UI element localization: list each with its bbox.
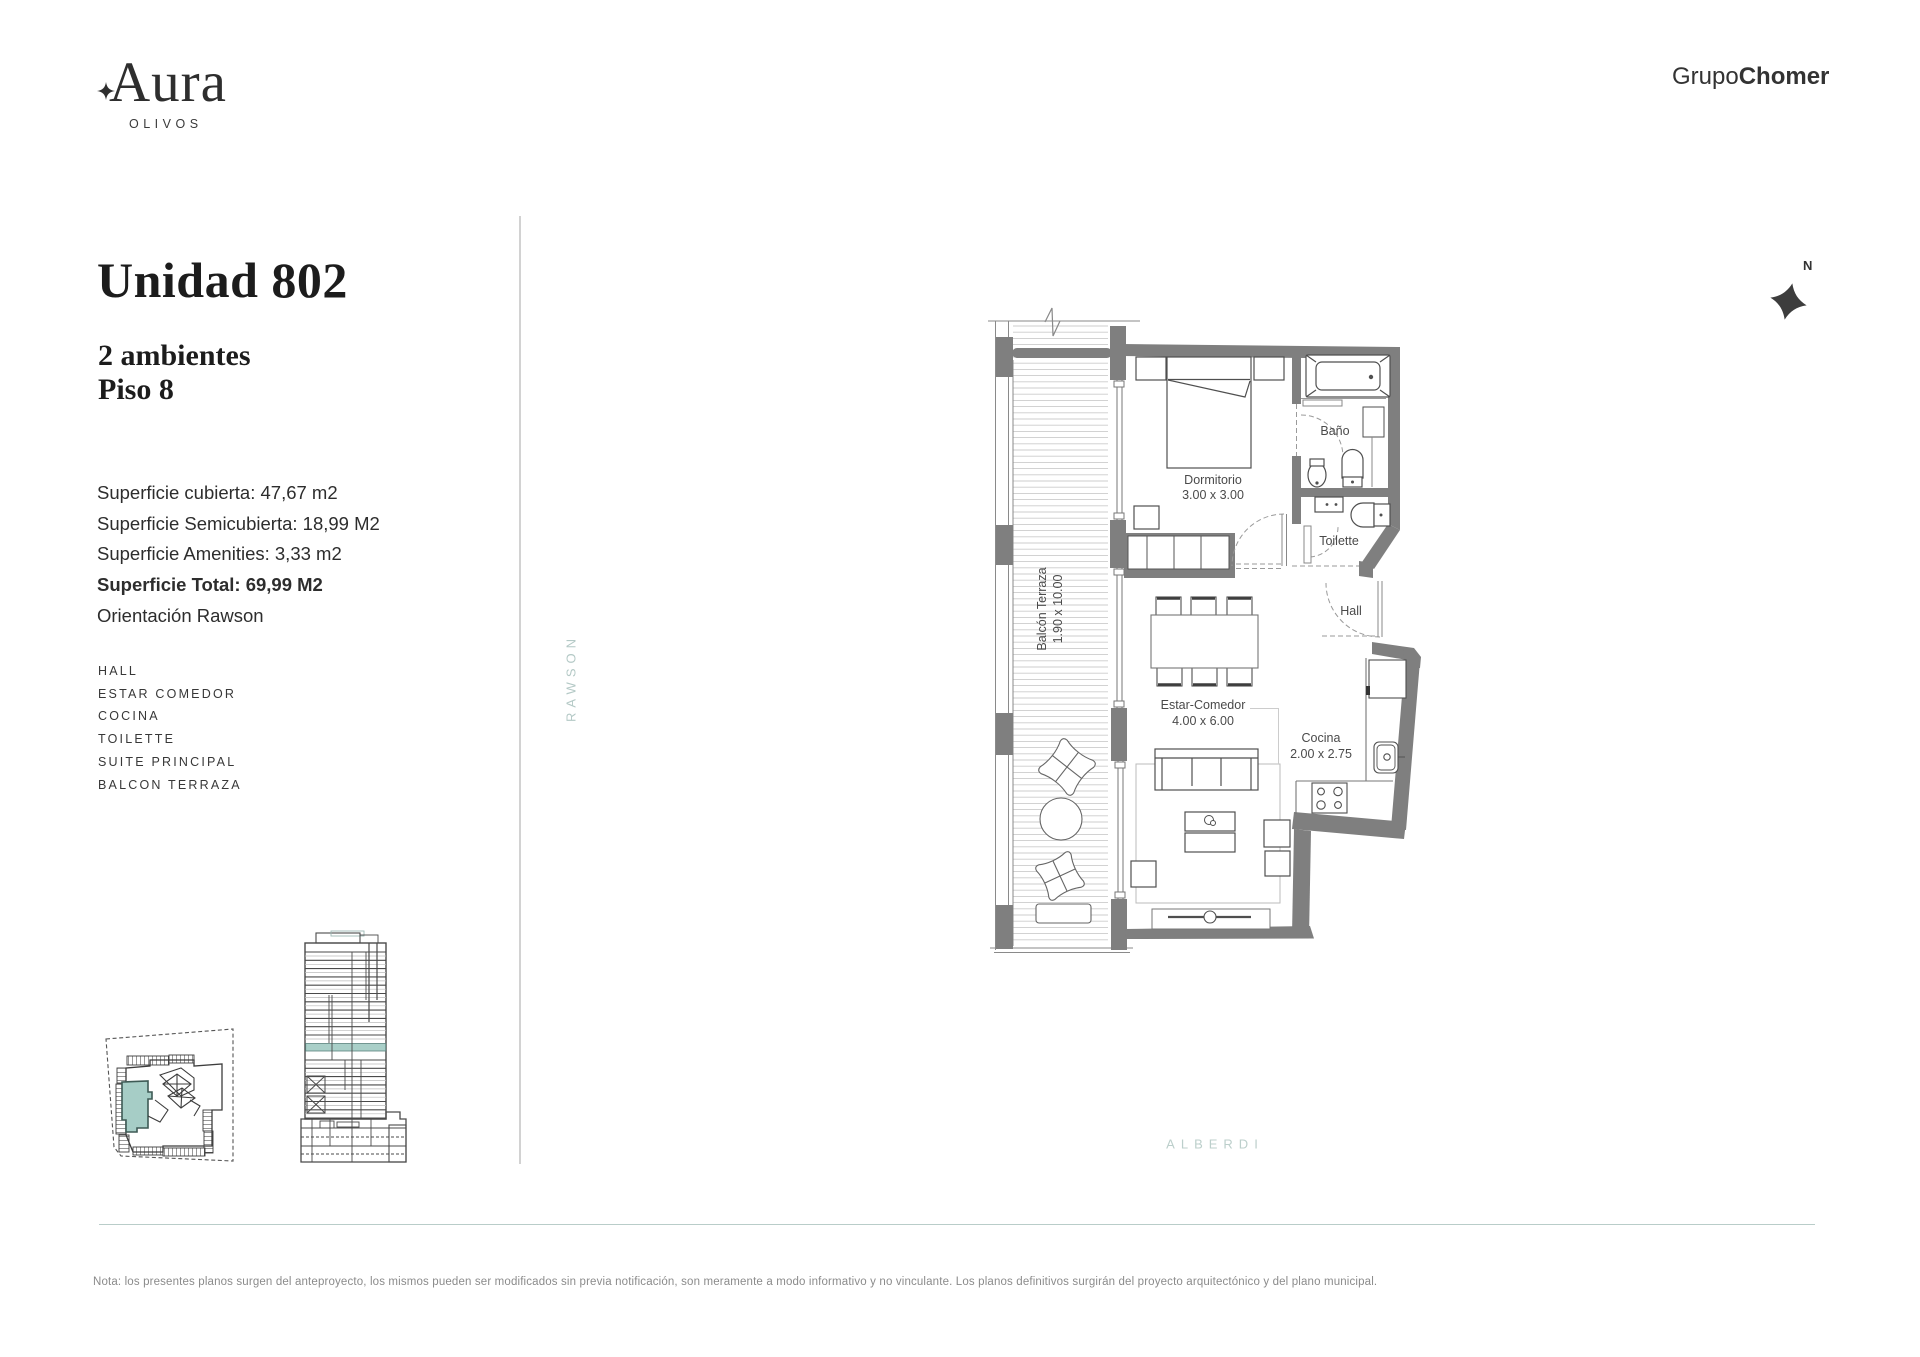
svg-text:Baño: Baño	[1320, 424, 1349, 438]
svg-text:Toilette: Toilette	[1319, 534, 1359, 548]
svg-text:3.00 x 3.00: 3.00 x 3.00	[1182, 488, 1244, 502]
svg-text:Cocina: Cocina	[1302, 731, 1341, 745]
svg-text:Estar-Comedor: Estar-Comedor	[1161, 698, 1246, 712]
svg-text:1.90 x 10.00: 1.90 x 10.00	[1051, 575, 1065, 644]
svg-text:Hall: Hall	[1340, 604, 1362, 618]
svg-text:2.00 x 2.75: 2.00 x 2.75	[1290, 747, 1352, 761]
svg-text:4.00 x 6.00: 4.00 x 6.00	[1172, 714, 1234, 728]
svg-text:Dormitorio: Dormitorio	[1184, 473, 1242, 487]
svg-text:Balcón Terraza: Balcón Terraza	[1035, 567, 1049, 650]
